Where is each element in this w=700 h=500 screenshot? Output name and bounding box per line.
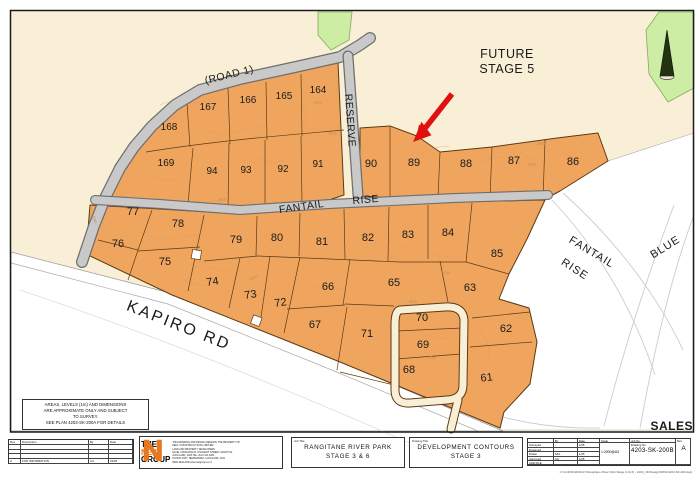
future-stage-line2: STAGE 5 (479, 62, 534, 76)
lot-label: 78 (172, 218, 184, 230)
lot-label: 81 (316, 236, 328, 248)
company-details: THIS DRAWING AND DESIGN REMAINS THE PROP… (172, 441, 252, 463)
rev-label: Rev (677, 439, 690, 443)
lot-label: 85 (491, 248, 503, 260)
lot-label: 65 (388, 277, 400, 289)
row-cad-file: CAD FILE (528, 461, 554, 465)
lot-label: 79 (230, 234, 242, 246)
lot-label: 88 (460, 158, 472, 170)
lot-label: 77 (127, 206, 139, 218)
lot-label: 91 (312, 159, 324, 170)
lot-label: 84 (442, 227, 454, 239)
drawing-title-line1: DEVELOPMENT CONTOURS (410, 443, 522, 452)
disclaimer-line: SEE PLAN 4203-SK-200A FOR DETAILS (23, 420, 148, 426)
lot-label: 68 (403, 364, 415, 376)
lot-label: 75 (159, 256, 171, 268)
lot-label: 61 (480, 371, 493, 384)
dim-label: 45m (409, 299, 418, 304)
lot-label: 165 (276, 91, 293, 102)
rev-value: A (9, 459, 21, 464)
job-title-line1: RANGITANE RIVER PARK (292, 443, 404, 452)
lot-label: 71 (361, 328, 373, 340)
cad-file-path: C:\Civil3D\4203GLY\Rangitane River Park … (400, 470, 692, 474)
lot-label: 66 (322, 281, 334, 293)
lot-label: 94 (206, 166, 218, 177)
lot-label: 67 (309, 319, 321, 331)
lot-label: 89 (408, 157, 420, 169)
lot-label: 82 (362, 232, 374, 244)
lot-label: 69 (417, 339, 429, 351)
scale-value: 1:2000@A3 (601, 450, 629, 454)
rev-description: FOR INFORMATION (21, 459, 89, 464)
rev-date: 01/25 (109, 459, 133, 464)
lot-label: 76 (112, 238, 124, 250)
job-title-box: Job Title RANGITANE RIVER PARK STAGE 3 &… (291, 437, 405, 468)
lot-label: 93 (240, 165, 252, 176)
lot-label: 63 (464, 282, 476, 294)
lot-label: 83 (402, 229, 414, 241)
lot-label: 80 (271, 232, 283, 244)
disclaimer-note: AREAS, LEVELS (1m) AND DIMENSIONS ARE AP… (22, 399, 149, 430)
job-title-line2: STAGE 3 & 6 (292, 452, 404, 461)
dim-label: 45m (217, 197, 226, 203)
lot-label: 167 (200, 102, 217, 113)
lot-label: 169 (158, 158, 175, 169)
sales-stamp: SALES (650, 419, 693, 433)
revision-table: Rev Description By Date A FOR INFORMATIO… (8, 439, 134, 464)
neil-group-logo-icon (140, 437, 166, 463)
drawing-no-label: Drawing No. (631, 443, 675, 447)
scale-cell: 1:2000@A3 (600, 443, 630, 465)
drawing-title-line2: STAGE 3 (410, 452, 522, 461)
lot-label: 92 (277, 164, 289, 175)
rev-by: CA (89, 459, 109, 464)
accessway-1 (191, 249, 201, 259)
lot-label: 74 (206, 275, 220, 289)
lot-label: 72 (274, 296, 288, 310)
rise-label: RISE (352, 193, 379, 207)
rev-cell: Rev A (676, 439, 691, 465)
dim-label: 50m (528, 162, 537, 167)
subdivision-plan-page: { "map": { "future_stage": ["FUTURE", "S… (0, 0, 700, 500)
drawing-number-cell: Drawing No. 4203-SK-200B (630, 443, 676, 465)
company-addr4: NEW ZEALAND www.neilgroup.co.nz (172, 461, 252, 464)
lot-label: 166 (240, 95, 257, 106)
lot-label: 86 (567, 156, 579, 168)
drawing-no-value: 4203-SK-200B (631, 448, 675, 454)
dim-label: 40m (428, 355, 437, 360)
lot-label: 70 (416, 312, 428, 324)
company-logo-box: THE NEIL GROUP THIS DRAWING AND DESIGN R… (139, 436, 283, 469)
drawing-title-box: Drawing Title DEVELOPMENT CONTOURS STAGE… (409, 437, 523, 468)
lot-label: 90 (365, 158, 377, 170)
dim-label: 50m (442, 270, 451, 275)
lot-label: 62 (500, 323, 512, 335)
lot-label: 87 (508, 155, 520, 167)
lot-label: 168 (161, 122, 178, 133)
lot-label: 164 (310, 85, 327, 96)
dim-label: 45m (537, 141, 546, 146)
dim-label: 45m (314, 100, 323, 105)
dim-label: 50m (329, 131, 338, 136)
rev-letter: A (677, 445, 690, 452)
lot-label: 73 (244, 288, 258, 302)
signature-scale-table: By Date Scale Job No. Rev A 1:2000@A3 Dr… (527, 438, 691, 466)
future-stage-line1: FUTURE (480, 47, 534, 61)
